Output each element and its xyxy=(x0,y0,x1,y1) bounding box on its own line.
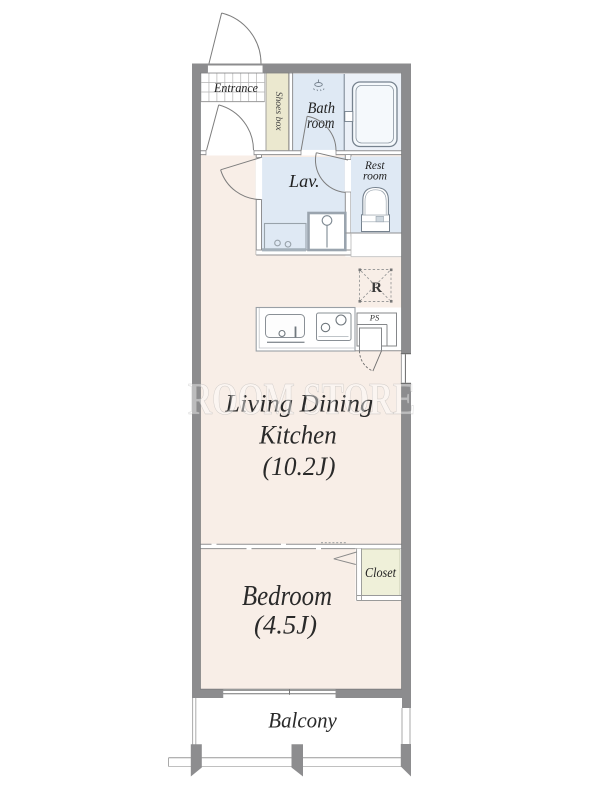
svg-text:R: R xyxy=(371,280,382,296)
svg-text:ROOM STORE: ROOM STORE xyxy=(188,373,415,424)
svg-text:room: room xyxy=(363,169,387,183)
svg-text:Kitchen: Kitchen xyxy=(258,421,336,450)
svg-text:Bedroom: Bedroom xyxy=(242,580,332,612)
svg-text:Shoes box: Shoes box xyxy=(273,92,283,132)
svg-text:Closet: Closet xyxy=(365,566,397,581)
svg-text:Lav.: Lav. xyxy=(288,171,320,191)
svg-text:Balcony: Balcony xyxy=(268,708,337,733)
svg-text:(10.2J): (10.2J) xyxy=(263,452,336,481)
svg-text:(4.5J): (4.5J) xyxy=(254,611,317,640)
svg-text:Entrance: Entrance xyxy=(213,80,258,95)
svg-text:PS: PS xyxy=(369,313,380,323)
